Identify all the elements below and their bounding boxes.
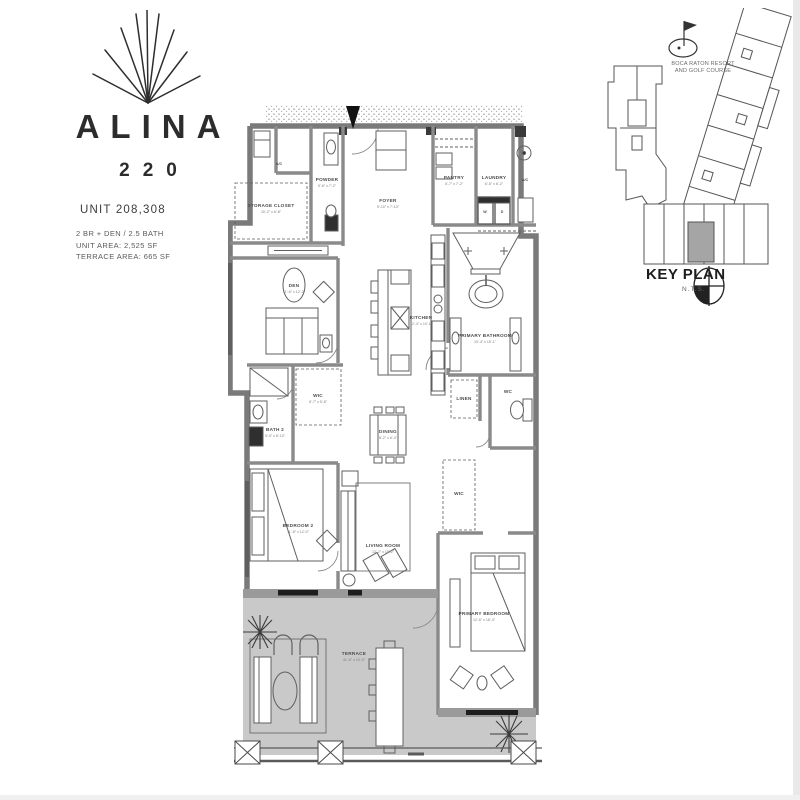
room-label-ac1: A/C	[276, 162, 283, 166]
wc-toilet-tank	[523, 399, 532, 421]
shower-canopy	[453, 233, 520, 269]
room-label-laundry: LAUNDRY	[482, 175, 507, 180]
primary-chair	[491, 666, 514, 689]
room-dims-kitchen: 12'-4" x 10'-1"	[410, 322, 433, 326]
keyplan-title: KEY PLAN	[646, 266, 726, 283]
room-dims-pantry: 5'-7" x 7'-2"	[445, 182, 464, 186]
sunburst-rays-icon	[83, 10, 213, 106]
terrace-sofa	[300, 657, 317, 723]
room-label-linen: LINEN	[456, 396, 472, 401]
key-plan: BOCA RATON RESORT AND GOLF COURSE KEY PL…	[596, 8, 796, 308]
spec-line: TERRACE AREA: 665 SF	[76, 251, 238, 263]
room-dims-foyer: 5'-10" x 7'-10"	[377, 205, 400, 209]
keyplan-note-line2: AND GOLF COURSE	[675, 68, 731, 74]
room-label-wic-primary: WIC	[454, 491, 464, 496]
powder-vanity	[324, 133, 338, 165]
living-side-table	[343, 574, 355, 586]
living-chair	[363, 553, 389, 582]
room-label-pantry: PANTRY	[444, 175, 465, 180]
room-dims-bath2: 5'-0" x 8'-10"	[265, 434, 286, 438]
keyplan-building-bottom	[644, 204, 768, 264]
appliance-label-washer: W	[483, 210, 487, 214]
page-edge-bottom	[0, 795, 800, 800]
appliance-label-dryer: D	[501, 210, 504, 214]
floor-plan-page: ALINA 220 UNIT 208,308 2 BR + DEN / 2.5 …	[0, 0, 800, 800]
keyplan-building-left	[608, 66, 666, 208]
unit-title: UNIT 208,308	[58, 204, 238, 216]
room-label-ac2: A/C	[522, 178, 529, 182]
den-chair	[313, 281, 334, 302]
terrace-dining-table	[376, 648, 403, 746]
den-sofa	[266, 308, 318, 354]
room-label-terrace: TERRACE	[342, 651, 366, 656]
key-plan-drawing	[596, 8, 796, 308]
dining-table	[370, 415, 406, 455]
unit-floor-plan: A/C STORAGE CLOSET 10'-2" x 6'-8" POWDER…	[228, 103, 546, 793]
room-label-bedroom2: BEDROOM 2	[283, 523, 314, 528]
plant-icon	[243, 615, 277, 649]
spec-line: 2 BR + DEN / 2.5 BATH	[76, 228, 238, 240]
room-label-storage: STORAGE CLOSET	[248, 203, 295, 208]
golf-flag-icon	[669, 21, 697, 57]
room-label-dining: DINING	[379, 429, 397, 434]
room-dims-powder: 5'-6" x 7'-2"	[318, 184, 337, 188]
room-label-primary-bath: PRIMARY BATHROOM	[458, 333, 512, 338]
room-label-wc: WC	[504, 389, 513, 394]
room-dims-bedroom2: 11'-8" x 12'-0"	[287, 530, 310, 534]
spec-line: UNIT AREA: 2,525 SF	[76, 240, 238, 252]
room-dims-laundry: 6'-5" x 6'-2"	[485, 182, 504, 186]
terrace-sofa	[254, 657, 271, 723]
room-label-powder: POWDER	[316, 177, 339, 182]
unit-specs: 2 BR + DEN / 2.5 BATH UNIT AREA: 2,525 S…	[58, 228, 238, 263]
room-dims-dining: 8'-2" x 6'-4"	[379, 436, 398, 440]
room-dims-wic-bed2: 5'-7" x 5'-8"	[309, 400, 328, 404]
primary-chair	[450, 666, 473, 689]
room-dims-primary-bedroom: 12'-6" x 16'-4"	[473, 618, 496, 622]
room-label-living: LIVING ROOM	[366, 543, 400, 548]
room-dims-primary-bath: 10'-4" x 15'-1"	[474, 340, 497, 344]
keyplan-note: BOCA RATON RESORT AND GOLF COURSE	[648, 61, 758, 76]
room-label-bath2: BATH 2	[266, 427, 284, 432]
room-label-kitchen: KITCHEN	[410, 315, 433, 320]
room-label-wic-bed2: WIC	[313, 393, 323, 398]
brand-number: 220	[58, 160, 238, 182]
living-rug	[356, 483, 410, 571]
brand-name: ALINA	[58, 108, 238, 146]
brand-block: ALINA 220 UNIT 208,308 2 BR + DEN / 2.5 …	[58, 10, 238, 263]
keyplan-note-line1: BOCA RATON RESORT	[671, 61, 734, 67]
exterior-stipple-band	[266, 105, 523, 124]
room-dims-storage: 10'-2" x 6'-8"	[261, 210, 282, 214]
room-dims-den: 11'-6" x 12'-2"	[283, 290, 306, 294]
keyplan-scale: N.T.S.	[682, 286, 706, 293]
room-dims-living: 13'-2" x 15'-2"	[372, 550, 395, 554]
bath2-toilet	[249, 427, 263, 446]
room-label-primary-bedroom: PRIMARY BEDROOM	[459, 611, 510, 616]
room-label-den: DEN	[289, 283, 300, 288]
room-label-foyer: FOYER	[379, 198, 397, 203]
keyplan-unit-highlight	[688, 222, 714, 262]
room-dims-terrace: 41'-6" x 10'-0"	[343, 658, 366, 662]
